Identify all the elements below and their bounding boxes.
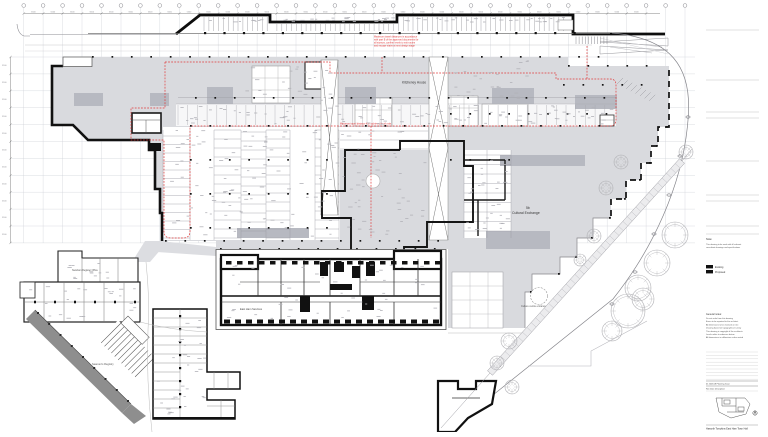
svg-text:Drawing based on topographical: Drawing based on topographical survey — [706, 327, 741, 330]
svg-text:All dimensions to be checked o: All dimensions to be checked on site — [706, 323, 739, 326]
svg-text:Seamen's Registry: Seamen's Registry — [92, 362, 114, 366]
svg-text:consultant drawings and specif: consultant drawings and specifications — [706, 246, 740, 249]
svg-text:General notes:: General notes: — [706, 313, 722, 316]
svg-text:01 2023.08 Planning Issue: 01 2023.08 Planning Issue — [706, 384, 731, 386]
svg-text:Newham Register Office: Newham Register Office — [72, 269, 99, 272]
svg-text:5b: 5b — [526, 206, 530, 210]
svg-text:Rev Date Description: Rev Date Description — [706, 388, 725, 391]
svg-text:This drawing is copyright of t: This drawing is copyright of the archite… — [706, 330, 743, 333]
svg-text:Existing: Existing — [715, 266, 724, 269]
svg-text:This drawing to be read with a: This drawing to be read with all relevan… — [706, 243, 742, 246]
svg-text:Errors to be reported to the a: Errors to be reported to the architect — [706, 320, 739, 323]
svg-text:Culture centre entrance: Culture centre entrance — [521, 305, 547, 308]
svg-text:Note:: Note: — [706, 237, 712, 241]
svg-text:Proposed: Proposed — [715, 271, 726, 274]
svg-text:All dimensions in millimetres: All dimensions in millimetres unless not… — [706, 336, 743, 339]
svg-text:and escape stairs at next desi: and escape stairs at next design stage — [374, 45, 415, 48]
svg-text:Haworth Tompkins East Ham Tow: Haworth Tompkins East Ham Town Hall — [706, 428, 748, 431]
svg-text:Kitcheney House: Kitcheney House — [402, 81, 426, 85]
svg-text:Cultural Exchange: Cultural Exchange — [512, 211, 540, 215]
svg-text:Levels relate to ordnance datu: Levels relate to ordnance datum — [706, 333, 735, 336]
svg-text:East Ham Services: East Ham Services — [240, 307, 263, 311]
svg-text:Do not scale from this drawing: Do not scale from this drawing — [706, 317, 733, 320]
